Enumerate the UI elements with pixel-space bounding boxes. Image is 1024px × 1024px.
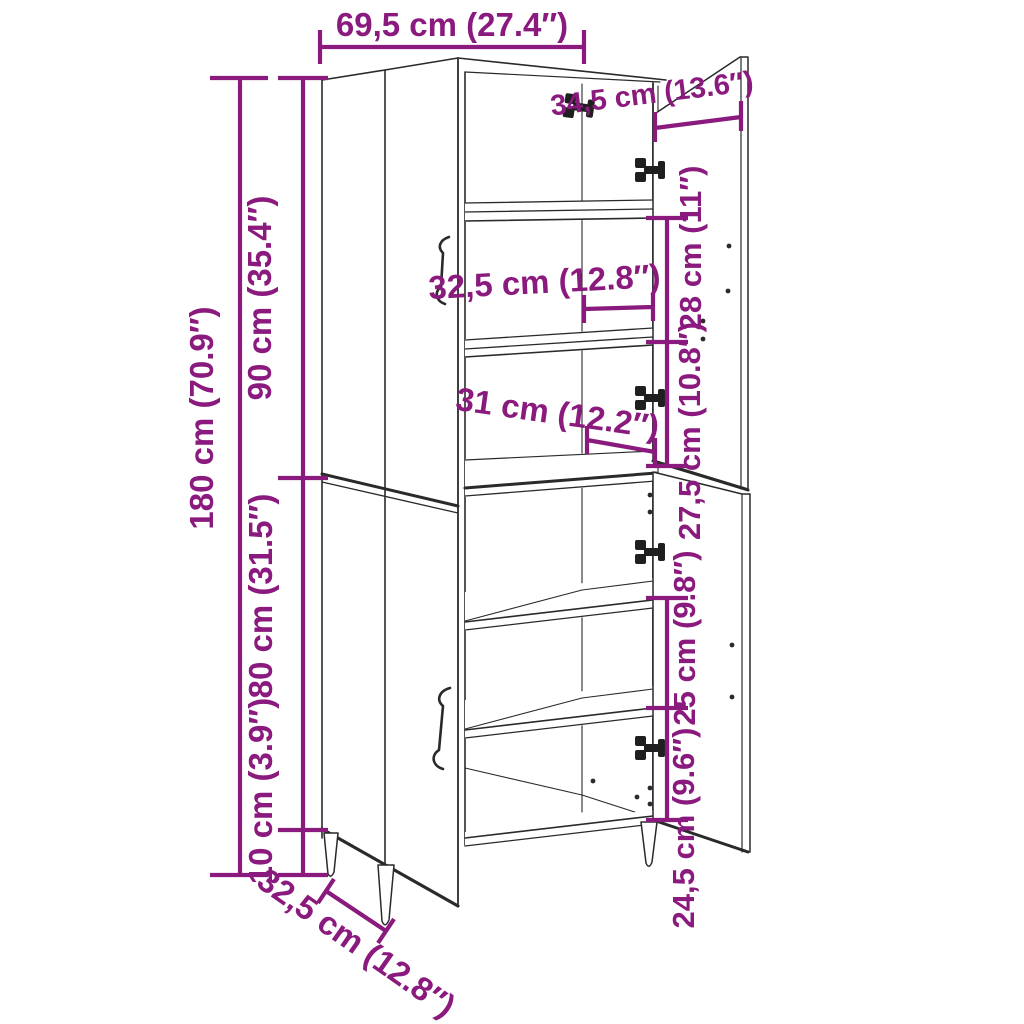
dim-right-lower-gap-label: 25 cm (9.8″) xyxy=(667,550,702,725)
cabinet-top-face xyxy=(458,58,666,82)
dim-middle-shelf-spacing-label: 31 cm (12.2″) xyxy=(454,380,662,445)
dim-upper-shelf-spacing: 32,5 cm (12.8″) xyxy=(427,257,661,323)
diagram-stage: 69,5 cm (27.4″) 34,5 cm (13.6″) 180 cm (… xyxy=(0,0,1024,1024)
dim-upper-shelf-spacing-label: 32,5 cm (12.8″) xyxy=(427,257,661,306)
dim-height-sections: 90 cm (35.4″) 80 cm (31.5″) 10 cm (3.9″) xyxy=(241,78,328,884)
hinge-icon-lower-2 xyxy=(635,736,665,760)
dim-lower-section-label: 80 cm (31.5″) xyxy=(242,494,279,699)
dim-right-bottom-gap-label: 24,5 cm (9.6″) xyxy=(666,728,701,929)
dim-base-depth-label: 32,5 cm (12.8″) xyxy=(251,861,462,1024)
shelf-lower-2 xyxy=(465,686,653,739)
leg-front-left xyxy=(324,833,338,876)
door-handle-lower xyxy=(434,688,450,769)
closed-front-doors xyxy=(322,58,458,906)
dim-width-top: 69,5 cm (27.4″) xyxy=(320,6,584,64)
cabinet-bottom-panel xyxy=(465,768,653,852)
leg-right xyxy=(641,822,657,866)
leg-front-mid xyxy=(378,865,394,925)
dim-leg-height-label: 10 cm (3.9″) xyxy=(242,698,279,884)
dim-height-total-label: 180 cm (70.9″) xyxy=(183,306,220,529)
dim-width-top-label: 69,5 cm (27.4″) xyxy=(336,6,568,43)
dim-base-depth: 32,5 cm (12.8″) xyxy=(251,861,462,1024)
dim-upper-section-label: 90 cm (35.4″) xyxy=(241,196,278,401)
dim-right-upper-gap-label: 28 cm (11″) xyxy=(673,166,708,331)
shelf-upper-2 xyxy=(465,327,653,358)
shelf-lower-1 xyxy=(465,578,653,631)
dim-right-middle-gap-label: 27,5 cm (10.8″) xyxy=(672,322,707,540)
middle-divider xyxy=(465,450,656,497)
shelf-upper-1 xyxy=(465,200,653,222)
hinge-icon-lower-1 xyxy=(635,540,665,564)
cabinet-dimension-diagram: 69,5 cm (27.4″) 34,5 cm (13.6″) 180 cm (… xyxy=(0,0,1024,1024)
hinge-icon-upper-1 xyxy=(635,158,665,182)
